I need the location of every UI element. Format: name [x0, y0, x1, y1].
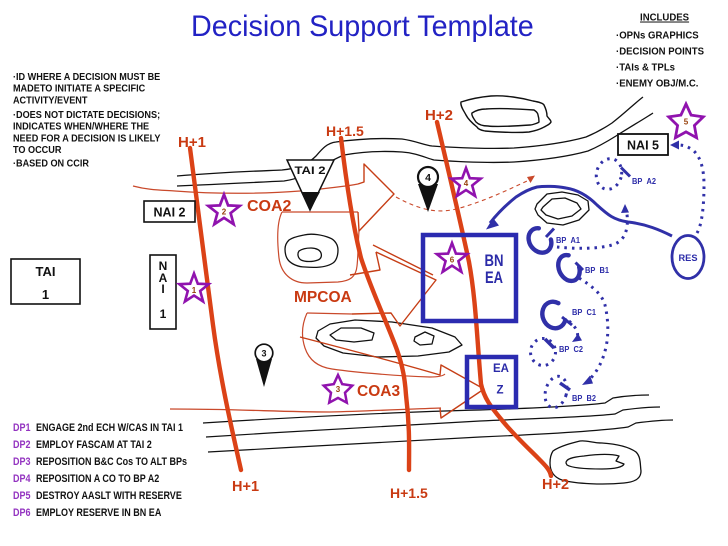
- svg-text:H+1.5: H+1.5: [326, 123, 364, 139]
- svg-text:BN: BN: [485, 252, 504, 270]
- svg-text:5: 5: [684, 118, 689, 127]
- svg-text:·TAIs & TPLs: ·TAIs & TPLs: [616, 62, 676, 73]
- svg-text:4: 4: [464, 179, 469, 188]
- svg-text:BP A2: BP A2: [632, 176, 656, 186]
- svg-text:BP B2: BP B2: [572, 393, 596, 403]
- svg-text:·DECISION POINTS: ·DECISION POINTS: [616, 46, 704, 57]
- svg-text:MPCOA: MPCOA: [294, 289, 352, 306]
- svg-text:NEED FOR A DECISION IS LIKELY: NEED FOR A DECISION IS LIKELY: [13, 133, 161, 145]
- svg-text:BP A1: BP A1: [556, 235, 580, 245]
- svg-text:COA3: COA3: [357, 383, 400, 400]
- svg-text:NAI 2: NAI 2: [154, 206, 186, 220]
- svg-text:·DOES NOT DICTATE DECISIONS;: ·DOES NOT DICTATE DECISIONS;: [13, 109, 160, 121]
- svg-text:EA: EA: [485, 269, 503, 287]
- svg-text:1: 1: [192, 286, 197, 295]
- svg-text:ENGAGE 2nd ECH W/CAS IN TAI 1: ENGAGE 2nd ECH W/CAS IN TAI 1: [36, 422, 183, 434]
- svg-text:REPOSITION B&C Cos TO ALT BPs: REPOSITION B&C Cos TO ALT BPs: [36, 456, 187, 468]
- svg-text:EA: EA: [493, 363, 509, 375]
- svg-text:EMPLOY RESERVE IN BN EA: EMPLOY RESERVE IN BN EA: [36, 507, 161, 519]
- svg-text:INCLUDES: INCLUDES: [640, 12, 689, 23]
- svg-text:·BASED ON CCIR: ·BASED ON CCIR: [13, 158, 89, 170]
- svg-text:ACTIVITY/EVENT: ACTIVITY/EVENT: [13, 95, 88, 107]
- svg-text:TO OCCUR: TO OCCUR: [13, 144, 62, 156]
- svg-text:I: I: [161, 282, 164, 296]
- svg-text:·ENEMY OBJ/M.C.: ·ENEMY OBJ/M.C.: [616, 78, 699, 89]
- svg-text:TAI: TAI: [36, 264, 56, 279]
- svg-text:1: 1: [160, 307, 167, 321]
- svg-text:MADETO INITIATE A SPECIFIC: MADETO INITIATE A SPECIFIC: [13, 83, 145, 95]
- svg-text:DP2: DP2: [13, 439, 31, 451]
- svg-text:DESTROY AASLT WITH RESERVE: DESTROY AASLT WITH RESERVE: [36, 490, 182, 502]
- svg-text:3: 3: [336, 385, 341, 394]
- svg-text:Z: Z: [496, 385, 503, 397]
- svg-text:TAI 2: TAI 2: [295, 165, 326, 177]
- svg-text:H+1: H+1: [178, 134, 206, 151]
- svg-text:DP5: DP5: [13, 490, 31, 502]
- svg-text:H+2: H+2: [425, 107, 453, 124]
- svg-text:REPOSITION A CO TO BP A2: REPOSITION A CO TO BP A2: [36, 473, 160, 485]
- svg-text:H+2: H+2: [542, 477, 569, 493]
- svg-text:BP C2: BP C2: [559, 344, 583, 354]
- svg-text:DP1: DP1: [13, 422, 31, 434]
- svg-text:COA2: COA2: [247, 198, 292, 215]
- svg-text:3: 3: [261, 349, 266, 359]
- svg-text:BP B1: BP B1: [585, 265, 609, 275]
- svg-text:EMPLOY FASCAM AT TAI 2: EMPLOY FASCAM AT TAI 2: [36, 439, 152, 451]
- svg-text:DP3: DP3: [13, 456, 31, 468]
- svg-text:DP6: DP6: [13, 507, 31, 519]
- svg-text:Decision Support Template: Decision Support Template: [191, 9, 534, 43]
- svg-text:H+1.5: H+1.5: [390, 485, 428, 501]
- svg-text:DP4: DP4: [13, 473, 31, 485]
- svg-text:·ID WHERE A DECISION MUST BE: ·ID WHERE A DECISION MUST BE: [13, 71, 161, 83]
- svg-text:6: 6: [450, 256, 455, 265]
- svg-text:H+1: H+1: [232, 479, 259, 495]
- svg-text:4: 4: [425, 172, 431, 184]
- svg-text:INDICATES WHEN/WHERE THE: INDICATES WHEN/WHERE THE: [13, 121, 150, 133]
- svg-text:2: 2: [222, 208, 227, 217]
- svg-text:BP C1: BP C1: [572, 307, 596, 317]
- svg-text:NAI 5: NAI 5: [627, 139, 659, 153]
- svg-text:1: 1: [42, 287, 49, 302]
- svg-text:·OPNs GRAPHICS: ·OPNs GRAPHICS: [616, 30, 699, 41]
- svg-text:RES: RES: [679, 253, 698, 264]
